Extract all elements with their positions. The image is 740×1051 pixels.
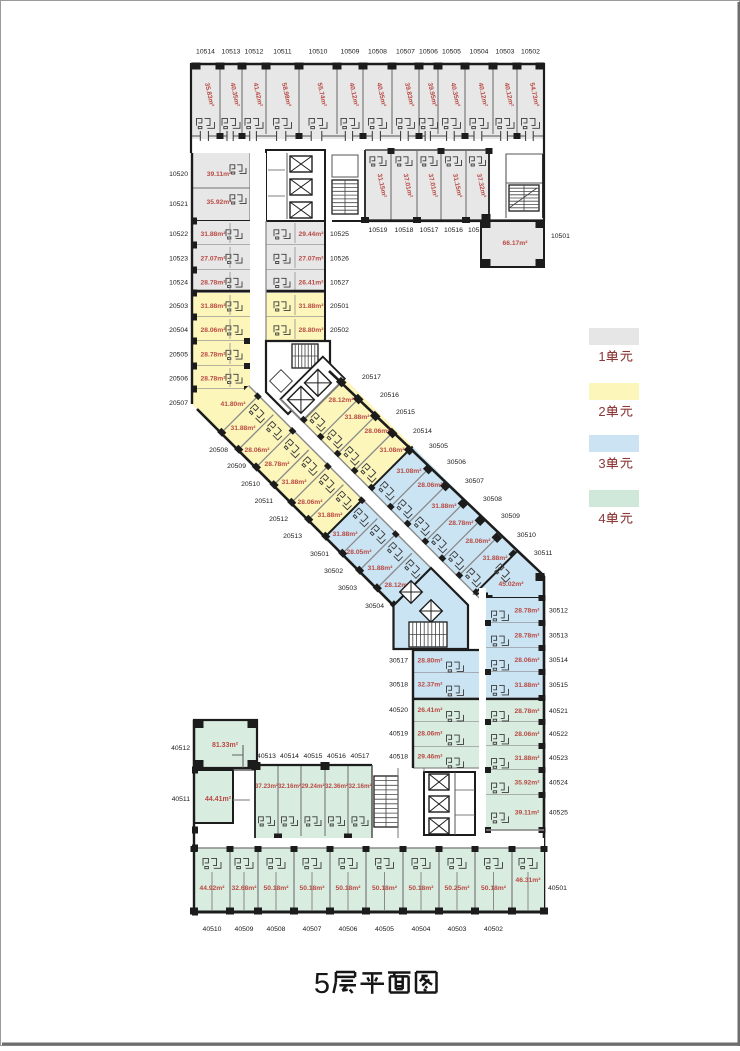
svg-text:10518: 10518	[395, 227, 414, 234]
svg-text:40509: 40509	[235, 926, 254, 933]
svg-text:32.68m²: 32.68m²	[232, 885, 258, 892]
svg-text:40510: 40510	[203, 926, 222, 933]
svg-text:10516: 10516	[444, 227, 463, 234]
svg-text:10522: 10522	[169, 231, 188, 238]
svg-text:10509: 10509	[341, 49, 360, 56]
svg-text:32.36m²: 32.36m²	[325, 783, 348, 790]
svg-text:31.88m²: 31.88m²	[368, 565, 394, 572]
svg-text:31.08m²: 31.08m²	[380, 447, 406, 454]
svg-text:30507: 30507	[465, 478, 484, 485]
svg-text:50.18m²: 50.18m²	[409, 885, 435, 892]
svg-text:30504: 30504	[365, 603, 384, 610]
svg-text:10502: 10502	[521, 49, 540, 56]
svg-text:31.88m²: 31.88m²	[231, 425, 257, 432]
svg-text:20502: 20502	[330, 327, 349, 334]
svg-text:40515: 40515	[304, 753, 323, 760]
svg-text:10520: 10520	[169, 171, 188, 178]
svg-text:40502: 40502	[484, 926, 503, 933]
svg-text:28.12m²: 28.12m²	[329, 397, 355, 404]
svg-text:40524: 40524	[549, 780, 568, 787]
svg-text:10503: 10503	[496, 49, 515, 56]
svg-text:20516: 20516	[380, 392, 399, 399]
svg-text:40514: 40514	[280, 753, 299, 760]
svg-text:40504: 40504	[412, 926, 431, 933]
svg-text:40501: 40501	[548, 885, 567, 892]
svg-text:31.08m²: 31.08m²	[397, 468, 423, 475]
svg-text:30511: 30511	[534, 550, 553, 557]
svg-text:31.88m²: 31.88m²	[299, 303, 325, 310]
svg-text:30505: 30505	[429, 443, 448, 450]
svg-text:28.78m²: 28.78m²	[265, 461, 291, 468]
svg-text:29.24m²: 29.24m²	[301, 783, 324, 790]
svg-text:28.78m²: 28.78m²	[201, 352, 227, 359]
svg-text:40513: 40513	[257, 753, 276, 760]
svg-text:28.78m²: 28.78m²	[201, 280, 227, 287]
svg-text:10505: 10505	[442, 49, 461, 56]
svg-text:30506: 30506	[447, 459, 466, 466]
svg-text:30517: 30517	[389, 658, 408, 665]
svg-text:2: 2	[598, 404, 605, 419]
svg-text:5: 5	[314, 968, 330, 1000]
svg-text:28.78m²: 28.78m²	[515, 633, 541, 640]
svg-text:10524: 10524	[169, 280, 188, 287]
svg-text:31.88m²: 31.88m²	[201, 303, 227, 310]
svg-text:44.41m²: 44.41m²	[205, 796, 232, 803]
svg-text:81.33m²: 81.33m²	[212, 742, 239, 749]
svg-text:20512: 20512	[269, 516, 288, 523]
svg-text:50.18m²: 50.18m²	[372, 885, 398, 892]
svg-text:10508: 10508	[368, 49, 387, 56]
svg-text:31.88m²: 31.88m²	[318, 512, 344, 519]
svg-text:40521: 40521	[549, 708, 568, 715]
svg-text:10512: 10512	[245, 49, 264, 56]
svg-text:10501: 10501	[551, 233, 570, 240]
svg-text:20517: 20517	[362, 374, 381, 381]
svg-text:40523: 40523	[549, 755, 568, 762]
svg-text:31.88m²: 31.88m²	[515, 755, 541, 762]
svg-text:40519: 40519	[389, 731, 408, 738]
svg-text:28.05m²: 28.05m²	[347, 549, 373, 556]
svg-text:35.92m²: 35.92m²	[207, 199, 233, 206]
svg-text:40518: 40518	[389, 754, 408, 761]
svg-text:10527: 10527	[330, 280, 349, 287]
svg-text:30501: 30501	[310, 551, 329, 558]
svg-text:10526: 10526	[330, 256, 349, 263]
svg-text:20503: 20503	[169, 303, 188, 310]
svg-text:40508: 40508	[267, 926, 286, 933]
svg-text:10507: 10507	[396, 49, 415, 56]
svg-text:28.06m²: 28.06m²	[201, 327, 227, 334]
svg-text:28.78m²: 28.78m²	[201, 376, 227, 383]
svg-text:40505: 40505	[375, 926, 394, 933]
svg-text:28.78m²: 28.78m²	[515, 708, 541, 715]
svg-text:40507: 40507	[303, 926, 322, 933]
svg-text:10513: 10513	[222, 49, 241, 56]
svg-text:29.46m²: 29.46m²	[418, 754, 444, 761]
svg-text:35.92m²: 35.92m²	[515, 780, 541, 787]
svg-text:40506: 40506	[339, 926, 358, 933]
svg-text:30503: 30503	[338, 585, 357, 592]
svg-text:20510: 20510	[241, 481, 260, 488]
svg-text:40516: 40516	[327, 753, 346, 760]
svg-text:26.41m²: 26.41m²	[299, 280, 325, 287]
svg-text:28.06m²: 28.06m²	[298, 499, 324, 506]
svg-text:20515: 20515	[396, 409, 415, 416]
svg-text:20505: 20505	[169, 352, 188, 359]
svg-text:27.07m²: 27.07m²	[299, 256, 325, 263]
svg-text:30513: 30513	[549, 633, 568, 640]
svg-text:28.06m²: 28.06m²	[365, 428, 391, 435]
svg-text:31.88m²: 31.88m²	[515, 682, 541, 689]
svg-text:32.16m²: 32.16m²	[278, 783, 301, 790]
svg-text:31.88m²: 31.88m²	[333, 531, 359, 538]
svg-text:30510: 30510	[517, 532, 536, 539]
svg-text:20506: 20506	[169, 376, 188, 383]
svg-text:28.06m²: 28.06m²	[466, 538, 492, 545]
svg-text:66.17m²: 66.17m²	[503, 240, 529, 247]
svg-text:30518: 30518	[389, 682, 408, 689]
svg-text:28.06m²: 28.06m²	[418, 731, 444, 738]
svg-text:10510: 10510	[309, 49, 328, 56]
svg-text:20509: 20509	[227, 463, 246, 470]
svg-text:10523: 10523	[169, 256, 188, 263]
svg-text:10511: 10511	[273, 49, 292, 56]
svg-text:20514: 20514	[413, 428, 432, 435]
svg-text:44.92m²: 44.92m²	[200, 885, 226, 892]
svg-text:40520: 40520	[389, 707, 408, 714]
svg-text:40522: 40522	[549, 731, 568, 738]
svg-text:27.07m²: 27.07m²	[201, 256, 227, 263]
svg-text:45.02m²: 45.02m²	[499, 581, 525, 588]
svg-text:10521: 10521	[169, 201, 188, 208]
svg-text:40503: 40503	[448, 926, 467, 933]
svg-text:10519: 10519	[369, 227, 388, 234]
svg-text:10525: 10525	[330, 231, 349, 238]
svg-text:20504: 20504	[169, 327, 188, 334]
svg-text:28.06m²: 28.06m²	[245, 447, 271, 454]
svg-text:20513: 20513	[283, 533, 302, 540]
svg-text:10514: 10514	[196, 49, 215, 56]
svg-text:50.25m²: 50.25m²	[445, 885, 471, 892]
svg-text:28.78m²: 28.78m²	[449, 520, 475, 527]
svg-text:30514: 30514	[549, 657, 568, 664]
svg-text:30509: 30509	[501, 513, 520, 520]
svg-text:28.06m²: 28.06m²	[418, 482, 444, 489]
svg-text:29.44m²: 29.44m²	[299, 231, 325, 238]
svg-text:20507: 20507	[169, 400, 188, 407]
svg-text:30515: 30515	[549, 682, 568, 689]
svg-text:31.88m²: 31.88m²	[483, 555, 509, 562]
svg-text:30508: 30508	[483, 496, 502, 503]
svg-text:28.80m²: 28.80m²	[299, 327, 325, 334]
svg-text:1: 1	[598, 349, 605, 364]
svg-text:3: 3	[598, 456, 605, 471]
svg-text:50.18m²: 50.18m²	[481, 885, 507, 892]
svg-text:28.06m²: 28.06m²	[515, 731, 541, 738]
svg-text:50.18m²: 50.18m²	[264, 885, 290, 892]
svg-text:31.88m²: 31.88m²	[282, 479, 308, 486]
svg-text:31.88m²: 31.88m²	[201, 231, 227, 238]
svg-text:10517: 10517	[420, 227, 439, 234]
svg-text:20511: 20511	[255, 498, 274, 505]
svg-text:31.88m²: 31.88m²	[345, 414, 371, 421]
svg-text:50.18m²: 50.18m²	[300, 885, 326, 892]
svg-text:39.11m²: 39.11m²	[515, 810, 540, 817]
svg-text:10504: 10504	[470, 49, 489, 56]
svg-text:40525: 40525	[549, 810, 568, 817]
svg-text:28.78m²: 28.78m²	[515, 608, 541, 615]
svg-text:40517: 40517	[351, 753, 370, 760]
svg-text:10506: 10506	[419, 49, 438, 56]
svg-text:28.80m²: 28.80m²	[418, 658, 444, 665]
svg-text:31.88m²: 31.88m²	[432, 503, 458, 510]
svg-text:30502: 30502	[324, 568, 343, 575]
svg-text:30512: 30512	[549, 608, 568, 615]
svg-text:28.06m²: 28.06m²	[515, 657, 541, 664]
svg-text:20508: 20508	[209, 447, 228, 454]
svg-text:39.11m²: 39.11m²	[207, 171, 232, 178]
svg-text:4: 4	[598, 511, 605, 526]
svg-text:46.31m²: 46.31m²	[516, 877, 542, 884]
svg-text:40511: 40511	[172, 796, 191, 803]
svg-text:20501: 20501	[330, 303, 349, 310]
svg-text:32.16m²: 32.16m²	[348, 783, 371, 790]
svg-text:26.41m²: 26.41m²	[418, 707, 444, 714]
svg-text:50.18m²: 50.18m²	[336, 885, 362, 892]
svg-text:32.37m²: 32.37m²	[418, 682, 444, 689]
svg-text:40512: 40512	[171, 745, 190, 752]
svg-text:37.23m²: 37.23m²	[255, 783, 278, 790]
svg-text:41.80m²: 41.80m²	[221, 401, 247, 408]
